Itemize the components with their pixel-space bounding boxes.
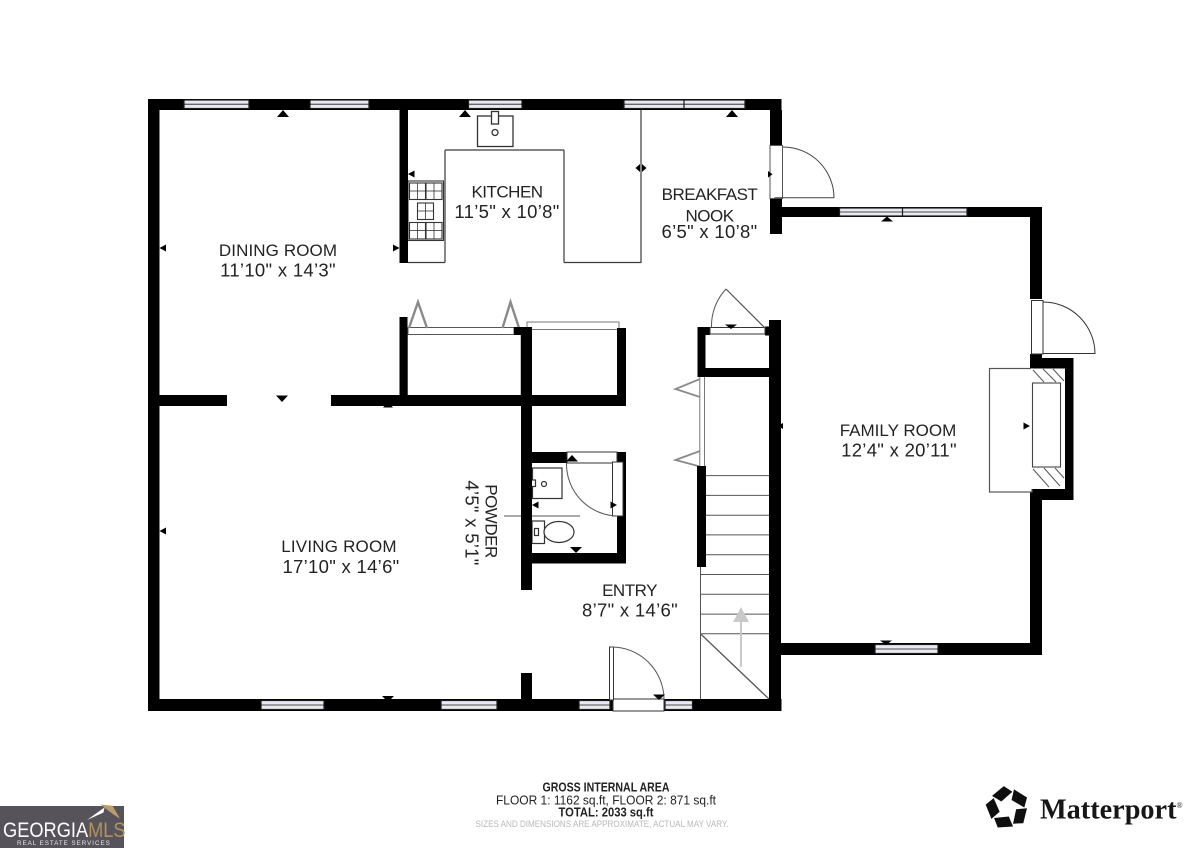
svg-text:TOTAL: 2033 sq.ft: TOTAL: 2033 sq.ft: [559, 805, 655, 820]
svg-text:12’4" x 20’11": 12’4" x 20’11": [841, 440, 957, 461]
svg-text:GEORGIAMLS: GEORGIAMLS: [3, 819, 126, 843]
svg-text:ENTRY: ENTRY: [602, 581, 657, 600]
svg-text:6’5" x 10’8": 6’5" x 10’8": [662, 221, 758, 242]
svg-text:4’5" x 5’1": 4’5" x 5’1": [462, 480, 483, 565]
svg-text:FAMILY ROOM: FAMILY ROOM: [840, 421, 957, 440]
svg-text:11’5" x 10’8": 11’5" x 10’8": [454, 201, 559, 222]
svg-text:SIZES AND DIMENSIONS ARE APPRO: SIZES AND DIMENSIONS ARE APPROXIMATE, AC…: [476, 819, 729, 830]
svg-text:REAL ESTATE SERVICES: REAL ESTATE SERVICES: [17, 840, 111, 847]
svg-text:8’7" x 14’6": 8’7" x 14’6": [582, 600, 678, 621]
svg-text:Matterport: Matterport: [1040, 795, 1177, 826]
svg-text:®: ®: [1177, 801, 1183, 810]
svg-text:POWDER: POWDER: [482, 484, 501, 558]
svg-text:11’10" x 14’3": 11’10" x 14’3": [220, 260, 336, 281]
svg-text:DINING ROOM: DINING ROOM: [219, 241, 337, 260]
svg-text:LIVING ROOM: LIVING ROOM: [281, 537, 397, 556]
svg-text:17’10" x 14’6": 17’10" x 14’6": [282, 556, 399, 577]
svg-text:GROSS INTERNAL AREA: GROSS INTERNAL AREA: [543, 780, 670, 795]
svg-text:KITCHEN: KITCHEN: [471, 183, 542, 202]
svg-text:BREAKFAST: BREAKFAST: [662, 185, 758, 204]
